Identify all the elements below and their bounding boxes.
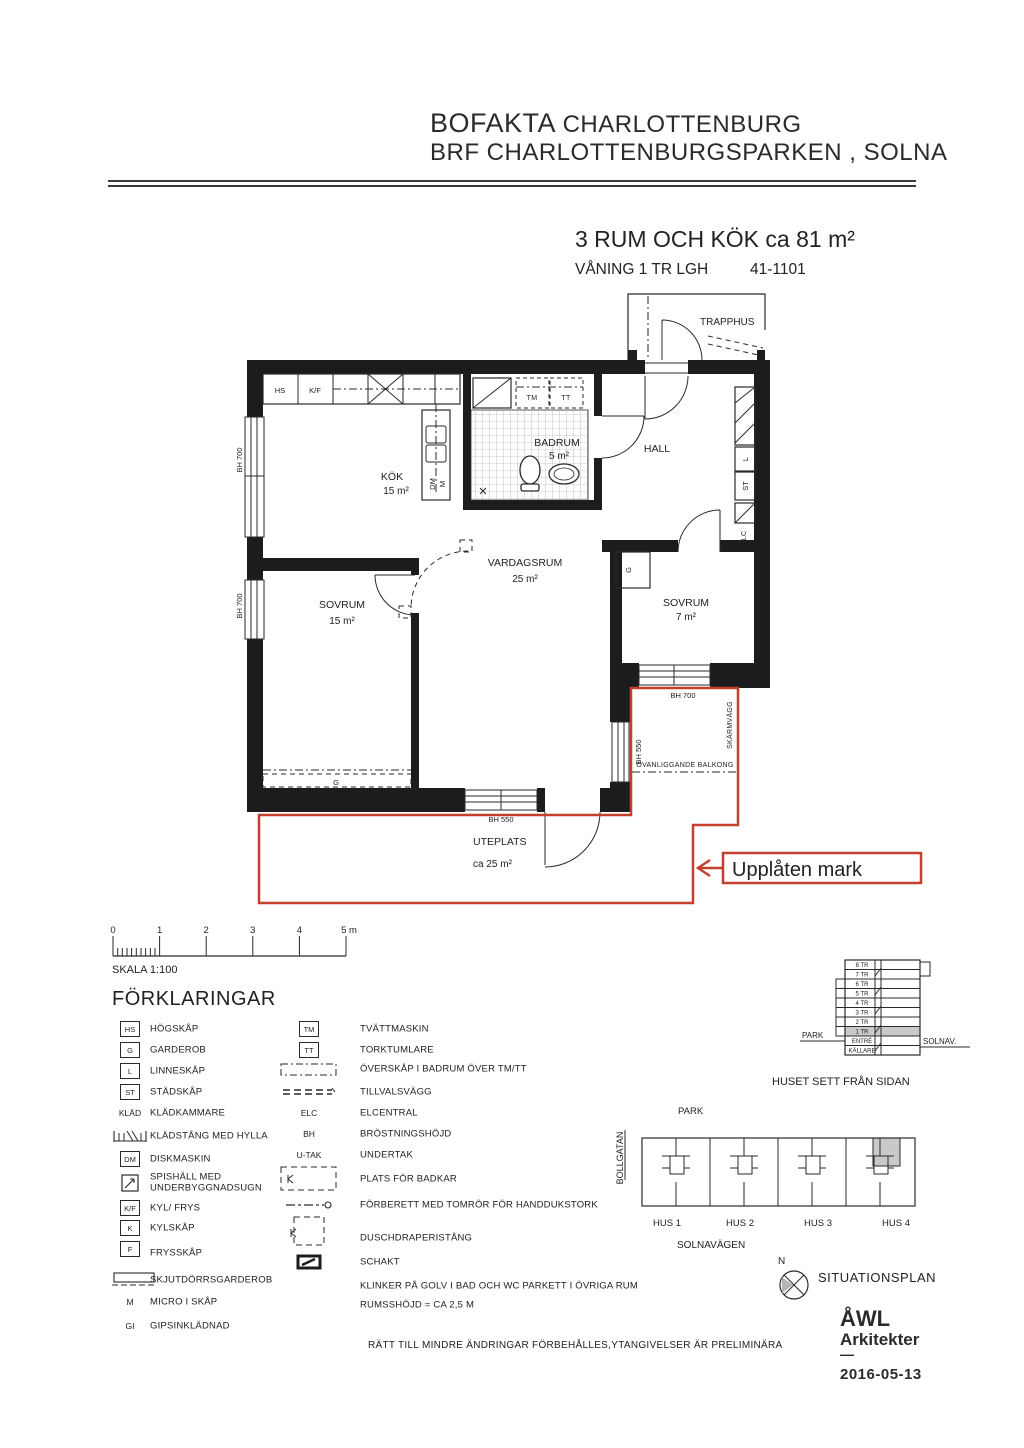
toilet-symbol (520, 456, 540, 491)
scale-tick-4: 4 (297, 925, 302, 936)
disclaimer: RÄTT TILL MINDRE ÄNDRINGAR FÖRBEHÅLLES,Y… (368, 1340, 783, 1351)
scale-bar: 0 1 2 3 4 5 m (108, 922, 358, 966)
floor-label: 5 TR (856, 992, 870, 998)
linneskap-symbol: L (120, 1063, 140, 1079)
tm-mark: TM (527, 395, 538, 402)
kok-area: 15 m² (383, 486, 409, 497)
window-kok (245, 417, 264, 537)
sovrum-stor-label: SOVRUM (319, 599, 365, 611)
firm-separator: — (840, 1346, 854, 1362)
apartment-title: 3 RUM OCH KÖK ca 81 m² (575, 226, 855, 253)
sovrum-liten-area: 7 m² (676, 612, 697, 623)
kf-mark: K/F (309, 386, 321, 395)
window-balkong (612, 722, 629, 782)
floor-label: 6 TR (856, 982, 870, 988)
firm-name-line1: ÅWL (840, 1306, 890, 1332)
hall-label: HALL (644, 443, 670, 455)
floor-label: 1 TR (856, 1030, 870, 1036)
north-label: N (778, 1256, 785, 1267)
vardagsrum-label: VARDAGSRUM (488, 557, 562, 569)
tvattmaskin-symbol: TM (299, 1021, 319, 1037)
vardagsrum-area: 25 m² (512, 574, 538, 585)
diskmaskin-symbol: DM (120, 1151, 140, 1167)
bedroom-fittings: G (263, 575, 600, 867)
scale-tick-0: 0 (110, 925, 115, 936)
hus1-label: HUS 1 (653, 1218, 681, 1229)
hus3-label: HUS 3 (804, 1218, 832, 1229)
bh700-left-upper: BH 700 (235, 447, 244, 472)
bollgatan-label: BOLLGATAN (615, 1132, 625, 1185)
siteplan-park-label: PARK (678, 1106, 704, 1117)
skarmvagg-label: SKÄRMVÄGG (726, 701, 734, 749)
house-elevation: 8 TR 7 TR 6 TR 5 TR 4 TR 3 TR 2 TR 1 TR … (800, 952, 972, 1070)
header-divider (108, 180, 916, 187)
garderob-symbol: G (120, 1042, 140, 1058)
badrum-area: 5 m² (549, 451, 570, 462)
badrum-label: BADRUM (534, 437, 580, 449)
header-title-line2: BRF CHARLOTTENBURGSPARKEN , SOLNA (430, 139, 947, 167)
kok-label: KÖK (381, 471, 403, 483)
scale-tick-2: 2 (204, 925, 209, 936)
kitchen-fittings: HS K/F DM M (263, 374, 472, 618)
l-mark: L (741, 457, 750, 461)
uteplats-area: ca 25 m² (473, 859, 513, 870)
elevation-caption: HUSET SETT FRÅN SIDAN (772, 1076, 910, 1088)
bofakta-sheet: BOFAKTA CHARLOTTENBURG BRF CHARLOTTENBUR… (0, 0, 1024, 1448)
ovanliggande-balkong-label: OVANLIGGANDE BALKONG (636, 762, 733, 769)
window-vardagsrum (465, 790, 537, 810)
bh550-balkong: BH 550 (634, 739, 643, 764)
hogskap-symbol: HS (120, 1021, 140, 1037)
brand-text: BOFAKTA (430, 108, 555, 138)
floor-label: 2 TR (856, 1020, 870, 1026)
floor-plan: TRAPPHUS (230, 288, 940, 918)
legend-row: TMTVÄTTMASKIN (278, 1019, 758, 1039)
hus2-label: HUS 2 (726, 1218, 754, 1229)
overskap-symbol (280, 1062, 338, 1077)
site-plan: PARK BOLLGATAN HUS 1 HUS 2 HUS 3 HUS 4 S… (612, 1098, 937, 1256)
hall-fittings: L ST ELC G (616, 363, 755, 588)
floor-label: 4 TR (856, 1001, 870, 1007)
floor-label: ENTRÉ (852, 1038, 872, 1045)
header-title-line1: BOFAKTA CHARLOTTENBURG (430, 108, 947, 139)
hs-mark: HS (275, 386, 285, 395)
spishall-symbol (121, 1174, 139, 1192)
elc-mark: ELC (741, 531, 748, 546)
torktumlare-symbol: TT (299, 1042, 319, 1058)
hus4-label: HUS 4 (882, 1218, 910, 1229)
window-sovrum-stor (245, 580, 264, 639)
legend-row: GIGIPSINKLÄDNAD (112, 1316, 312, 1336)
window-sovrum-liten (639, 665, 710, 685)
floor-label: 7 TR (856, 973, 870, 979)
bh550-uteplats: BH 550 (488, 815, 513, 824)
dm-mark: DM (428, 478, 437, 490)
tt-mark: TT (561, 395, 571, 402)
tomror-symbol (285, 1200, 333, 1210)
uteplats-label: UTEPLATS (473, 836, 526, 848)
scale-tick-5: 5 m (341, 925, 357, 936)
stadskap-symbol: ST (120, 1084, 140, 1100)
siteplan-caption: SITUATIONSPLAN (818, 1270, 936, 1285)
floor-label: 3 TR (856, 1011, 870, 1017)
micro-symbol: M (126, 1297, 133, 1307)
sovrum-liten-label: SOVRUM (663, 597, 709, 609)
upplaten-mark-label: Upplåten mark (732, 859, 863, 881)
schakt-symbol (296, 1254, 322, 1270)
tillvalsvagg-symbol (282, 1087, 336, 1097)
trapphus-label: TRAPPHUS (700, 317, 755, 328)
elevation-park-label: PARK (802, 1031, 824, 1040)
kylskap-symbol: K (120, 1220, 140, 1236)
trapphus-outline: TRAPPHUS (628, 294, 765, 360)
apartment-unit-number: 41-1101 (750, 261, 806, 279)
legend-row: RUMSSHÖJD = CA 2,5 M (278, 1295, 758, 1315)
floor-label: 8 TR (856, 963, 870, 969)
sovrum-stor-area: 15 m² (329, 616, 355, 627)
badkar-symbol (280, 1166, 338, 1192)
document-date: 2016-05-13 (840, 1366, 922, 1383)
scale-caption: SKALA 1:100 (112, 964, 177, 976)
kylfrys-symbol: K/F (120, 1200, 140, 1216)
frysskap-symbol: F (120, 1241, 140, 1257)
apartment-floor-label: VÅNING 1 TR LGH (575, 261, 708, 279)
klad-symbol: KLÄD (119, 1108, 141, 1118)
legend-row: KLINKER PÅ GOLV I BAD OCH WC PARKETT I Ö… (278, 1276, 758, 1296)
m-mark: M (438, 481, 447, 487)
elevation-solnav-label: SOLNAV. (923, 1037, 956, 1046)
legend-row: TTTORKTUMLARE (278, 1040, 758, 1060)
legend-title: FÖRKLARINGAR (112, 988, 276, 1011)
bh700-left-lower: BH 700 (235, 593, 244, 618)
document-header: BOFAKTA CHARLOTTENBURG BRF CHARLOTTENBUR… (430, 108, 947, 167)
g-mark-sovrum: G (333, 778, 339, 787)
gips-symbol: GI (126, 1321, 135, 1331)
sink-symbol (549, 464, 579, 484)
project-text: CHARLOTTENBURG (563, 111, 802, 138)
scale-tick-1: 1 (157, 925, 162, 936)
highlighted-unit (873, 1138, 900, 1166)
compass-wedge (782, 1277, 793, 1293)
north-arrow-icon: N (768, 1252, 820, 1304)
legend-row: ÖVERSKÅP I BADRUM ÖVER TM/TT (278, 1059, 758, 1079)
solnavagen-label: SOLNAVÄGEN (677, 1239, 745, 1251)
utak-symbol: U-TAK (297, 1150, 322, 1160)
st-mark: ST (741, 481, 750, 491)
floor-label: KÄLLARE (848, 1048, 875, 1055)
bh700-balkong: BH 700 (670, 691, 695, 700)
kladstang-symbol (112, 1128, 148, 1144)
duschstang-symbol (290, 1215, 328, 1247)
elc-symbol: ELC (301, 1108, 318, 1118)
g-mark-hall: G (624, 567, 633, 573)
scale-tick-3: 3 (250, 925, 255, 936)
bh-symbol: BH (303, 1129, 315, 1139)
